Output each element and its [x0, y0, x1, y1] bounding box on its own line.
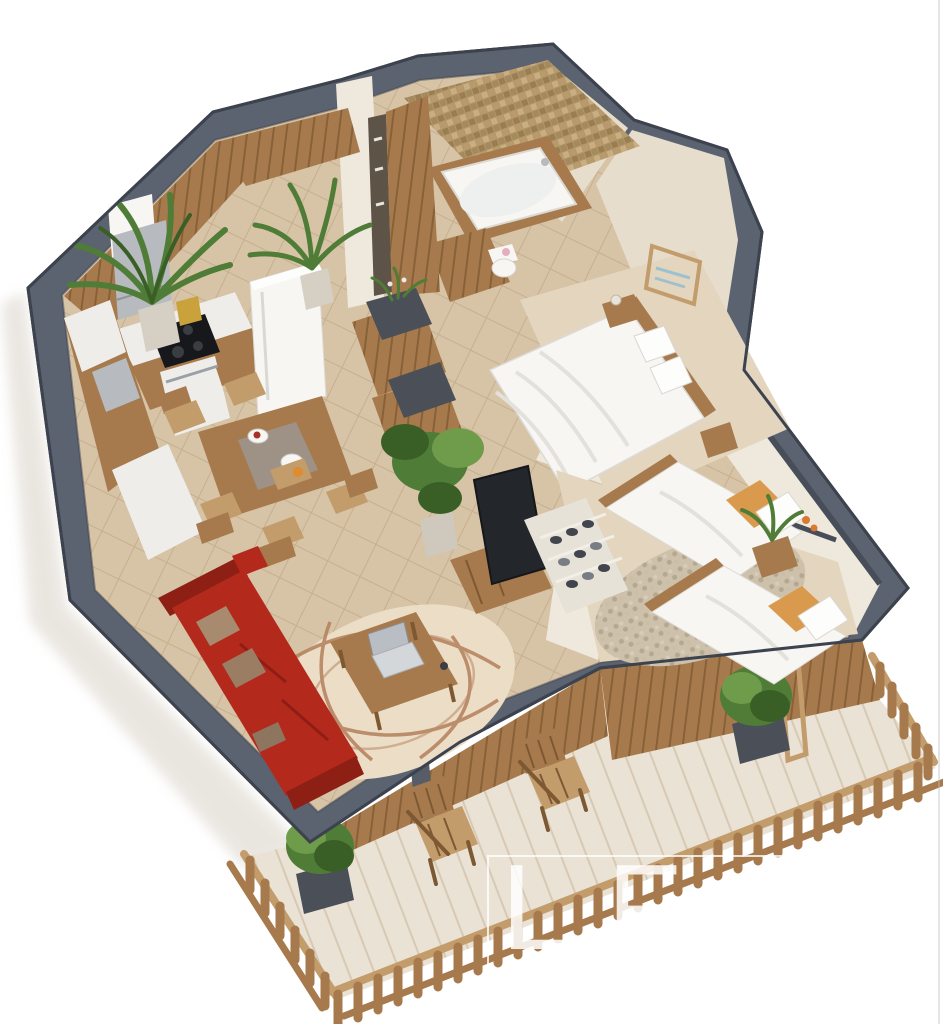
image-border-line [938, 0, 940, 1024]
watermark-letters: L F C I [501, 837, 881, 977]
watermark-letter-4: I [845, 837, 881, 977]
orange-flower-2 [811, 525, 818, 532]
lamp-1 [611, 295, 621, 305]
food-2 [293, 467, 303, 477]
watermark-letter-2: F [607, 837, 684, 977]
orange-flower-1 [802, 516, 810, 524]
watermark: L F C I [487, 855, 943, 1024]
floor-plan-image: L F C I [0, 0, 943, 1024]
toilet [492, 259, 516, 277]
computer-mouse [440, 662, 448, 670]
watermark-letter-3: C [689, 859, 835, 959]
bath-faucet [541, 158, 549, 166]
food-1 [254, 432, 261, 439]
watermark-letter-1: L [501, 837, 571, 977]
toilet-towel [502, 248, 510, 256]
